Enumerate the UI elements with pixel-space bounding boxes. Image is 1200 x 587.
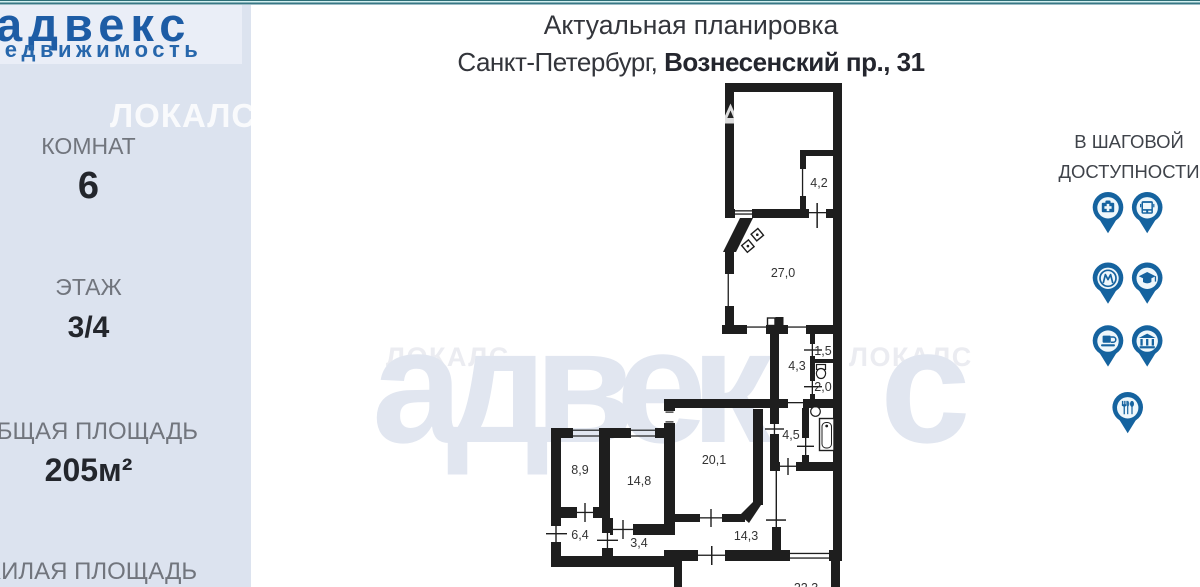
svg-text:ЛОКАЛС: ЛОКАЛС	[110, 97, 256, 134]
svg-text:8,9: 8,9	[571, 463, 588, 477]
svg-text:4,2: 4,2	[810, 176, 827, 190]
svg-text:14,3: 14,3	[734, 529, 758, 543]
svg-text:4,3: 4,3	[788, 359, 805, 373]
svg-text:22,3: 22,3	[794, 581, 818, 587]
svg-text:20,1: 20,1	[702, 453, 726, 467]
svg-text:4,5: 4,5	[782, 428, 799, 442]
svg-text:27,0: 27,0	[771, 266, 795, 280]
svg-text:ЛОКАЛС: ЛОКАЛС	[1090, 97, 1200, 134]
svg-text:с: с	[880, 294, 971, 477]
svg-text:адвек: адвек	[372, 294, 773, 477]
svg-text:6,4: 6,4	[571, 528, 588, 542]
svg-text:1,5: 1,5	[814, 344, 831, 358]
svg-text:14,8: 14,8	[627, 474, 651, 488]
svg-text:3,4: 3,4	[630, 536, 647, 550]
svg-text:2,0: 2,0	[814, 380, 831, 394]
